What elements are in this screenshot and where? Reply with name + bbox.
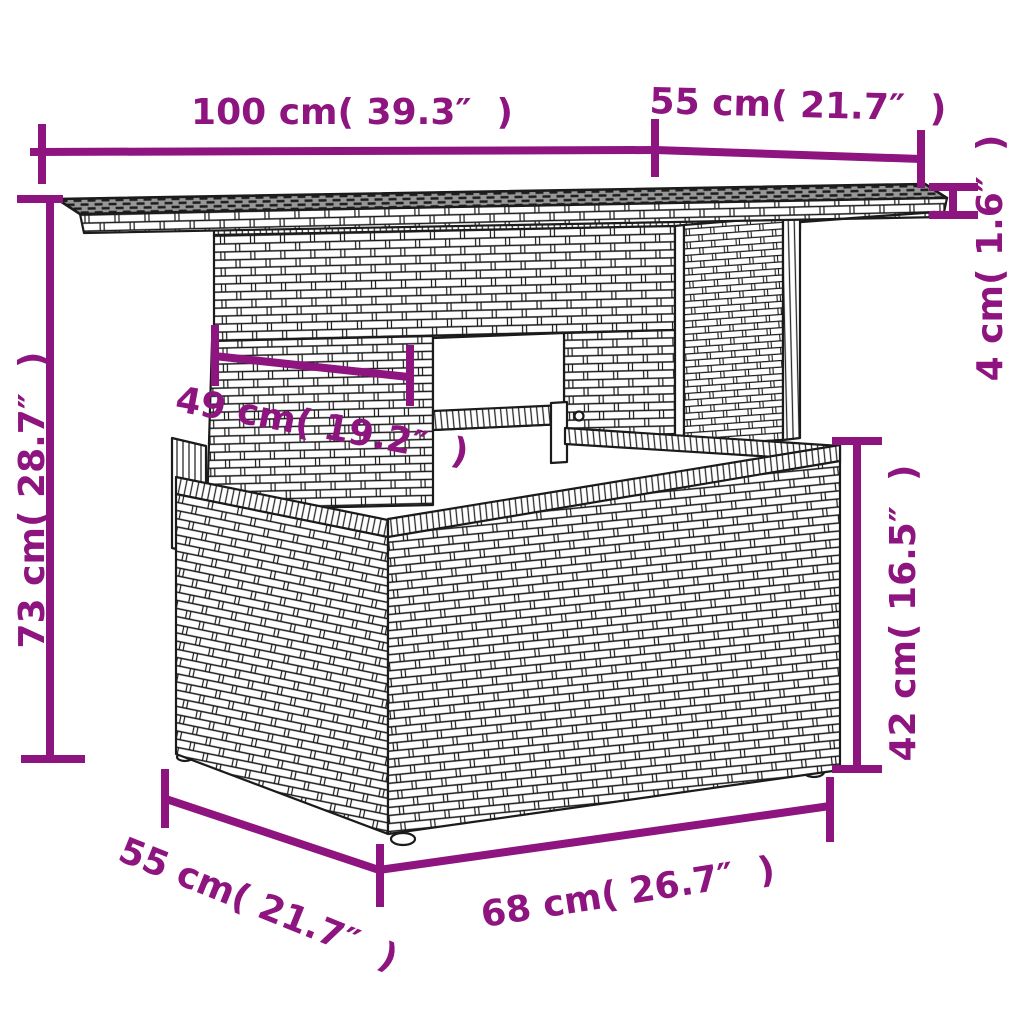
pedestal-upper-band <box>214 226 675 341</box>
dimension-label-base-height: 42 cm( 16.5″ ) <box>886 465 922 762</box>
table-base <box>176 445 840 845</box>
dimension-label-tabletop-thickness: 4 cm( 1.6″ ) <box>973 135 1009 382</box>
pedestal-right-panel <box>564 330 675 438</box>
table-top <box>57 184 947 233</box>
dimension-label-overall-height: 73 cm( 28.7″ ) <box>15 352 51 649</box>
base-foot-front <box>391 833 415 845</box>
table-drawing <box>57 184 947 845</box>
pedestal-corner-pole <box>675 225 684 448</box>
dimension-label-tabletop-depth: 55 cm( 21.7″ ) <box>649 84 947 128</box>
dimension-label-tabletop-width: 100 cm( 39.3″ ) <box>191 95 513 131</box>
bolt-detail <box>575 412 584 421</box>
base-front-left-face <box>176 494 388 834</box>
pedestal-side-face <box>684 217 783 446</box>
pedestal-edge-roll <box>783 216 800 440</box>
dimension-line-tabletop-depth <box>655 130 921 188</box>
dimension-diagram: 100 cm( 39.3″ ) 55 cm( 21.7″ ) 4 cm( 1.6… <box>0 0 1024 1024</box>
